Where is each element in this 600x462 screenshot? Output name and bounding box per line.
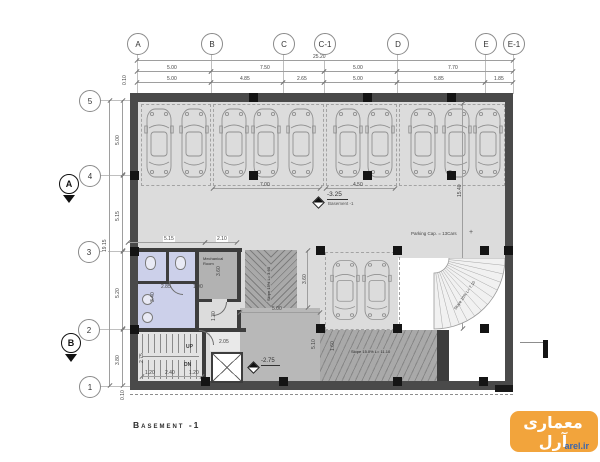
dim-text: 7.70 [447,65,459,71]
column [393,377,402,386]
ramp-slope-label: Slope 15% L= 3.60 [266,266,271,302]
ramp-curved: Slope 10% L= 7.10 [398,258,505,382]
dim-text: 5.00 [115,134,121,146]
dim-text: 5.20 [115,287,121,299]
ramp-hatch [271,250,297,308]
grid-label: 2 [87,326,91,335]
dim-line [205,242,237,243]
dim-text: 0.10 [122,74,128,86]
dim-line [211,82,283,83]
grid-label: 4 [88,172,92,181]
column [130,171,139,180]
column [316,246,325,255]
car-icon [330,258,360,322]
grid-bubble-3: 3 [78,241,100,263]
dim-line [283,82,324,83]
column [316,324,325,333]
dim-text: 5.10 [311,338,317,350]
wall-bottom [130,381,513,390]
elevator [211,352,243,383]
stair-up-label: UP [186,344,193,350]
level-name: Basement -1 [328,201,354,206]
wall-right [505,93,513,390]
column [504,246,513,255]
grid-bubble-E: E [475,33,497,55]
dim-text: 5.15 [115,210,121,222]
grid-label: C [281,40,287,49]
dim-text: 1.30 [211,310,217,322]
grid-bubble-C1: C-1 [314,33,336,55]
dim-text: 2.85 [160,284,172,290]
column [480,324,489,333]
column [479,377,488,386]
grid-label: 1 [88,383,92,392]
grid-bubble-4: 4 [79,165,101,187]
column [447,171,456,180]
toilet-icon [145,256,156,270]
dim-text: 15.40 [457,183,463,198]
dim-text: 3.60 [302,273,308,285]
grid-bubble-D: D [387,33,409,55]
dim-text: 5.15 [163,236,175,242]
dim-line [213,188,320,189]
car-icon [144,106,174,180]
dim-text: 2.05 [218,339,230,345]
grid-label: 3 [87,248,91,257]
column [201,377,210,386]
dim-text: 5.00 [166,65,178,71]
dim-text: 3.40 [150,291,156,303]
grid-bubble-E1: E-1 [503,33,525,55]
ramp-slope-label: Slope 15.0% L= 11.10 [350,349,391,354]
partition-wall [166,252,169,281]
sink-icon [142,312,153,323]
grid-label: C-1 [319,40,332,49]
dim-text: 4.50 [352,182,364,188]
dim-text: 5.85 [433,76,445,82]
floor-plan-canvas: A B C C-1 D E E-1 5 4 3 2 1 A B 25.20 5.… [0,0,600,462]
grid-label: E [483,40,488,49]
partition-wall [237,252,241,302]
stair-landing-line [142,356,199,357]
grid-bubble-1: 1 [79,376,101,398]
dim-line [122,175,123,251]
partition-wall [138,248,242,252]
dim-line [137,60,513,61]
dim-text: 1.20 [144,370,156,376]
dim-text: 0.10 [120,389,126,401]
grid-label: E-1 [508,40,520,49]
dim-line [142,376,202,377]
dim-line [211,71,324,72]
column [130,325,139,334]
dim-text: 2.65 [296,76,308,82]
dim-text: 1.60 [330,340,336,352]
grid-label: D [395,40,401,49]
car-icon [365,106,395,180]
dim-line [397,71,513,72]
car-icon [408,106,438,180]
column [363,93,372,102]
partition-wall [227,299,241,302]
column [447,93,456,102]
car-icon [473,106,503,180]
grid-line [100,329,130,330]
column [363,171,372,180]
toilet-icon [175,256,186,270]
dim-text: 1.20 [188,370,200,376]
leader-line [520,342,545,343]
grid-line [100,386,130,387]
dim-text: 2.75 [139,352,145,364]
property-line [130,394,513,395]
column [249,171,258,180]
target-cross-icon: + [469,229,473,236]
grid-bubble-B: B [201,33,223,55]
car-icon [362,258,392,322]
dim-text: 7.50 [259,65,271,71]
section-arrow-icon [65,354,77,362]
car-icon [286,106,316,180]
partition-wall [195,252,199,330]
dim-line [122,329,123,386]
dim-text: 3.60 [216,265,222,277]
column [279,377,288,386]
car-icon [179,106,209,180]
grid-line [100,100,130,101]
marker-bar [543,340,548,358]
column [393,324,402,333]
car-icon [442,106,472,180]
grid-line [100,175,130,176]
drawing-title: Basement -1 [133,420,200,430]
dim-text: 2.40 [164,370,176,376]
dim-text: 4.85 [239,76,251,82]
grid-label: A [135,40,140,49]
dim-text: 2.10 [216,236,228,242]
dim-line [122,251,123,329]
car-icon [219,106,249,180]
car-icon [333,106,363,180]
dim-text: 5.00 [352,65,364,71]
column [130,247,139,256]
level-value: -2.75 [261,358,280,366]
grid-bubble-2: 2 [78,319,100,341]
partition-wall [138,328,246,332]
dim-line [137,71,211,72]
section-marker-A: A [59,174,79,203]
grid-bubble-5: 5 [79,90,101,112]
parking-capacity-note: Parking Cap. = 13Cars [411,231,457,236]
level-value: -3.25 [327,191,348,200]
corner-block [495,385,513,392]
dim-line [324,82,397,83]
dim-line [397,82,485,83]
section-marker-B: B [61,333,81,362]
dim-line [128,242,205,243]
stair-down-label: DN [184,362,191,368]
grid-label: B [209,40,214,49]
grid-label: 5 [88,97,92,106]
dim-text: 19.15 [102,238,108,253]
grid-bubble-A: A [127,33,149,55]
dim-text: 5.00 [271,306,283,312]
watermark-site-text: arel.ir [564,441,589,451]
watermark-logo: معماری آرل arel.ir [510,411,598,452]
ramp-entry [245,250,297,308]
section-label: A [59,174,79,194]
dim-text: 1.85 [493,76,505,82]
dim-line [109,100,110,386]
dim-line [324,71,397,72]
dim-text: 5.00 [352,76,364,82]
column [249,93,258,102]
car-icon [251,106,281,180]
dim-line [137,82,211,83]
dim-text: 7.00 [259,182,271,188]
dim-text: 1.90 [192,284,204,290]
dim-line [240,312,320,313]
column [393,246,402,255]
section-label: B [61,333,81,353]
column [480,246,489,255]
dim-line [326,188,395,189]
section-arrow-icon [63,195,75,203]
grid-bubble-C: C [273,33,295,55]
dim-text: 5.00 [166,76,178,82]
dim-line [485,82,513,83]
dim-text: 3.80 [115,354,121,366]
dim-line [122,100,123,175]
partition-wall [199,299,212,302]
